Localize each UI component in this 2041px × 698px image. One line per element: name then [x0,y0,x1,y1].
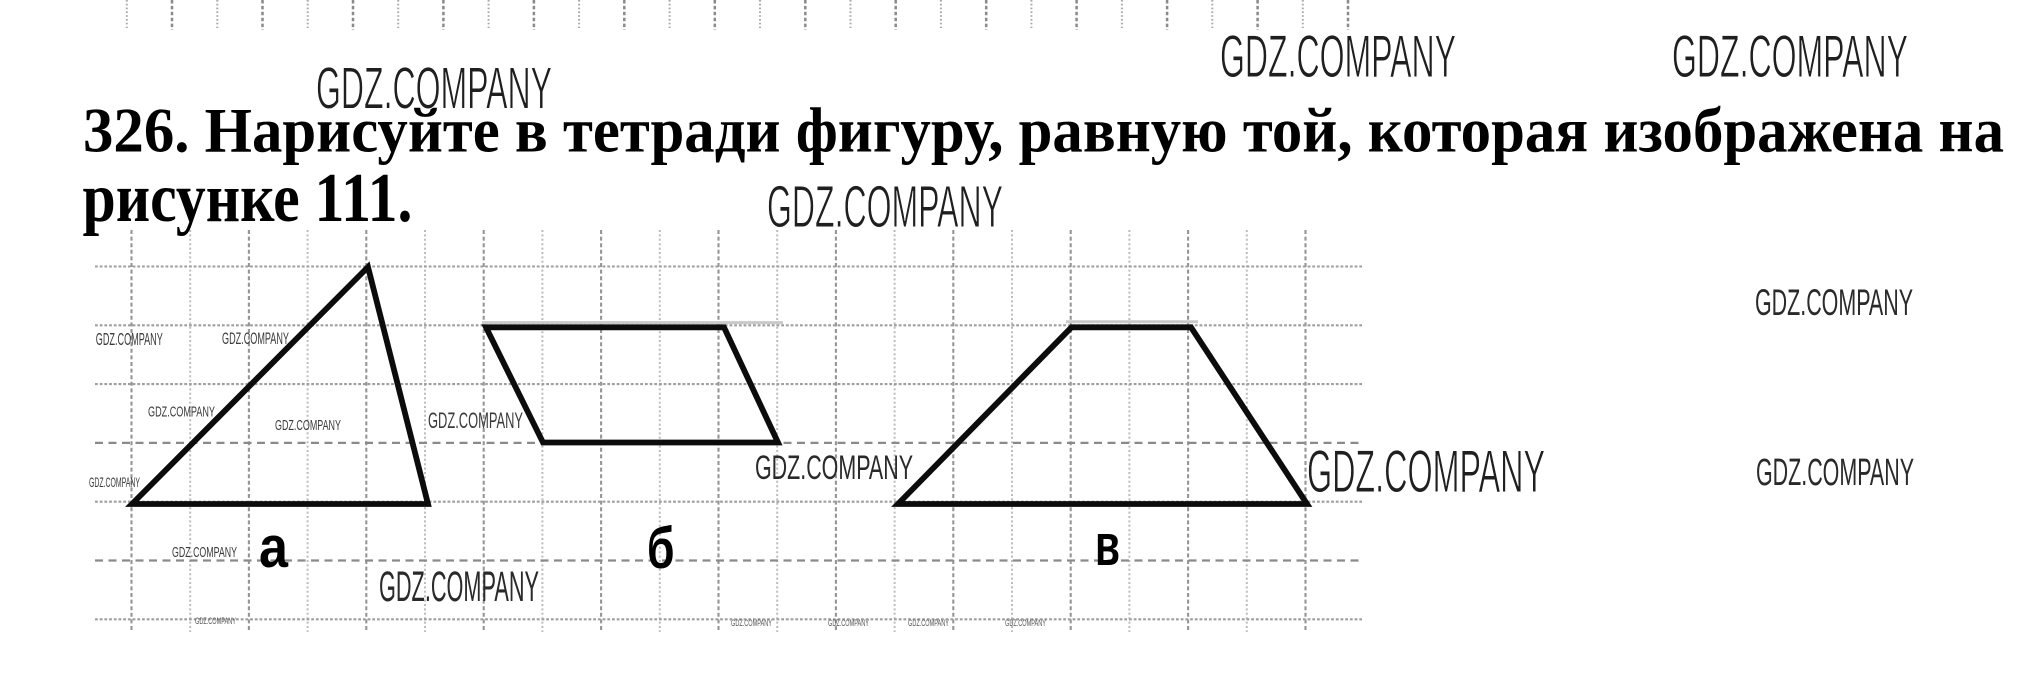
svg-text:в: в [1095,513,1120,578]
svg-text:GDZ.COMPANY: GDZ.COMPANY [731,618,772,628]
svg-text:GDZ.COMPANY: GDZ.COMPANY [96,329,163,349]
svg-text:GDZ.COMPANY: GDZ.COMPANY [1005,618,1046,628]
svg-text:GDZ.COMPANY: GDZ.COMPANY [755,449,913,487]
svg-text:GDZ.COMPANY: GDZ.COMPANY [195,616,236,626]
svg-text:GDZ.COMPANY: GDZ.COMPANY [1307,437,1545,505]
svg-text:GDZ.COMPANY: GDZ.COMPANY [222,330,289,348]
svg-text:GDZ.COMPANY: GDZ.COMPANY [275,418,341,434]
svg-text:GDZ.COMPANY: GDZ.COMPANY [148,404,215,421]
svg-text:GDZ.COMPANY: GDZ.COMPANY [1756,451,1914,494]
svg-text:б: б [647,516,675,581]
svg-text:GDZ.COMPANY: GDZ.COMPANY [828,618,869,628]
svg-text:GDZ.COMPANY: GDZ.COMPANY [767,174,1003,240]
svg-text:GDZ.COMPANY: GDZ.COMPANY [1220,22,1456,90]
svg-text:GDZ.COMPANY: GDZ.COMPANY [172,544,237,561]
svg-text:GDZ.COMPANY: GDZ.COMPANY [316,55,552,122]
svg-text:GDZ.COMPANY: GDZ.COMPANY [89,475,140,490]
svg-text:GDZ.COMPANY: GDZ.COMPANY [379,564,539,611]
svg-text:GDZ.COMPANY: GDZ.COMPANY [428,408,523,433]
svg-text:рисунке 111.: рисунке 111. [83,160,413,237]
svg-text:GDZ.COMPANY: GDZ.COMPANY [1755,282,1913,323]
svg-text:а: а [259,515,289,580]
svg-text:GDZ.COMPANY: GDZ.COMPANY [908,618,949,628]
svg-text:GDZ.COMPANY: GDZ.COMPANY [1672,22,1908,90]
